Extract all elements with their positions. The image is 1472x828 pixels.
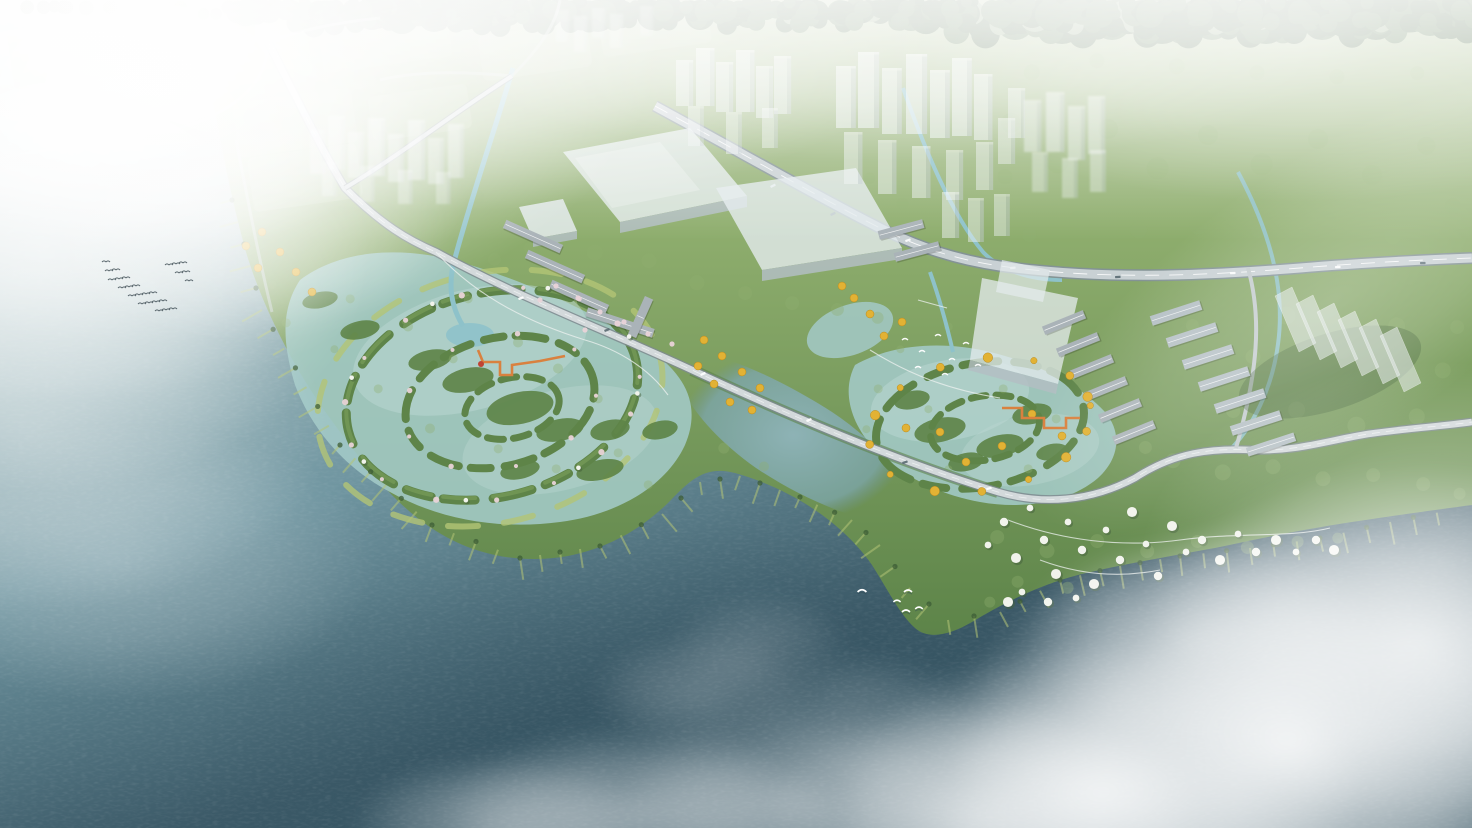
canopy-highlight (1012, 576, 1024, 588)
aerial-scene (0, 0, 1472, 828)
pink-blossom-tree (537, 297, 542, 302)
canopy-highlight (425, 424, 435, 434)
white-blossom-tree (1019, 589, 1026, 596)
pink-blossom-tree (568, 435, 573, 440)
autumn-tree (897, 385, 903, 391)
autumn-tree (850, 294, 858, 302)
pink-blossom-tree (521, 286, 525, 290)
white-blossom-tree (985, 542, 992, 549)
pink-blossom-tree (407, 388, 412, 393)
white-blossom-tree (635, 391, 640, 396)
willow-clump (368, 469, 373, 474)
pink-blossom-tree (515, 331, 520, 336)
canopy-highlight (552, 464, 561, 473)
red-pavilion (478, 361, 484, 367)
pink-blossom-tree (621, 319, 626, 324)
white-blossom-tree (1027, 505, 1034, 512)
canopy-highlight (553, 364, 563, 374)
pink-blossom-tree (494, 497, 499, 502)
pink-blossom-tree (450, 348, 454, 352)
canopy-highlight (718, 443, 729, 454)
pink-blossom-tree (594, 394, 598, 398)
autumn-tree (936, 363, 944, 371)
autumn-tree (998, 442, 1006, 450)
canopy-highlight (614, 448, 623, 457)
canopy-highlight (449, 354, 458, 363)
canopy-highlight (403, 322, 413, 332)
autumn-tree (710, 380, 718, 388)
canopy-highlight (831, 303, 844, 316)
autumn-tree (978, 487, 986, 495)
pink-blossom-tree (380, 477, 384, 481)
willow-clump (517, 555, 522, 560)
canopy-highlight (464, 294, 473, 303)
canopy-highlight (494, 444, 503, 453)
willow-clump (597, 543, 602, 548)
pink-blossom-tree (669, 341, 674, 346)
white-blossom-tree (1078, 546, 1086, 554)
autumn-tree (726, 398, 734, 406)
canopy-highlight (690, 275, 705, 290)
canopy-highlight (990, 530, 1004, 544)
pink-blossom-tree (362, 356, 366, 360)
white-blossom-tree (1011, 553, 1021, 563)
autumn-tree (694, 362, 702, 370)
canopy-highlight (642, 253, 657, 268)
autumn-tree (902, 424, 910, 432)
willow-clump (473, 539, 478, 544)
autumn-tree (962, 458, 970, 466)
willow-clump (892, 564, 897, 569)
autumn-tree (880, 332, 888, 340)
willow-clump (863, 530, 868, 535)
white-blossom-tree (464, 498, 469, 503)
willow-clump (971, 613, 976, 618)
fog-patch (30, 82, 470, 342)
white-blossom-tree (576, 465, 581, 470)
pink-blossom-tree (433, 497, 439, 503)
canopy-highlight (896, 345, 904, 353)
vehicle (1115, 276, 1121, 279)
autumn-tree (887, 471, 893, 477)
pink-blossom-tree (572, 347, 576, 351)
willow-clump (429, 522, 434, 527)
canopy-highlight (587, 244, 603, 260)
autumn-tree (870, 410, 880, 420)
pink-blossom-tree (614, 320, 620, 326)
canopy-highlight (738, 286, 752, 300)
pink-blossom-tree (459, 292, 465, 298)
canopy-highlight (644, 480, 653, 489)
autumn-tree (936, 428, 944, 436)
pink-blossom-tree (552, 481, 556, 485)
autumn-tree (898, 318, 906, 326)
autumn-tree (866, 310, 874, 318)
canopy-highlight (999, 384, 1008, 393)
canopy-highlight (759, 462, 769, 472)
canopy-highlight (374, 384, 383, 393)
willow-clump (1017, 599, 1022, 604)
pink-blossom-tree (598, 449, 604, 455)
willow-clump (678, 495, 683, 500)
autumn-tree (983, 353, 993, 363)
cloud (1020, 532, 1380, 752)
white-blossom-tree (1000, 518, 1008, 526)
willow-clump (717, 476, 722, 481)
pink-blossom-tree (403, 318, 408, 323)
autumn-tree (700, 336, 708, 344)
willow-clump (926, 601, 931, 606)
willow-clump (832, 510, 837, 515)
pink-blossom-tree (638, 375, 642, 379)
canopy-highlight (874, 384, 883, 393)
pink-blossom-tree (645, 331, 650, 336)
white-blossom-tree (627, 334, 632, 339)
rendering-canvas (0, 0, 1472, 828)
white-blossom-tree (430, 302, 435, 307)
autumn-tree (718, 352, 726, 360)
autumn-tree (930, 486, 940, 496)
pink-blossom-tree (575, 295, 580, 300)
pink-blossom-tree (582, 327, 587, 332)
autumn-tree (1031, 357, 1037, 363)
canopy-highlight (984, 597, 995, 608)
cloud (670, 592, 850, 692)
pink-blossom-tree (407, 434, 411, 438)
autumn-tree (838, 282, 846, 290)
pink-blossom-tree (514, 464, 518, 468)
willow-clump (337, 442, 342, 447)
white-blossom-tree (545, 286, 550, 291)
white-blossom-tree (362, 459, 367, 464)
white-blossom-tree (349, 375, 354, 380)
canopy-highlight (924, 405, 932, 413)
willow-clump (797, 494, 802, 499)
white-blossom-tree (1040, 536, 1048, 544)
pink-blossom-tree (628, 411, 633, 416)
pink-blossom-tree (349, 442, 354, 447)
pink-blossom-tree (448, 464, 453, 469)
canopy-highlight (785, 296, 799, 310)
pink-blossom-tree (342, 399, 348, 405)
willow-clump (399, 496, 404, 501)
autumn-tree (866, 440, 874, 448)
willow-clump (757, 480, 762, 485)
canopy-highlight (513, 338, 523, 348)
canopy-highlight (862, 425, 870, 433)
autumn-tree (756, 384, 764, 392)
willow-clump (639, 522, 644, 527)
pink-blossom-tree (597, 309, 602, 314)
white-blossom-tree (1003, 597, 1013, 607)
autumn-tree (748, 406, 756, 414)
willow-clump (557, 549, 562, 554)
pink-blossom-tree (553, 283, 558, 288)
autumn-tree (738, 368, 746, 376)
